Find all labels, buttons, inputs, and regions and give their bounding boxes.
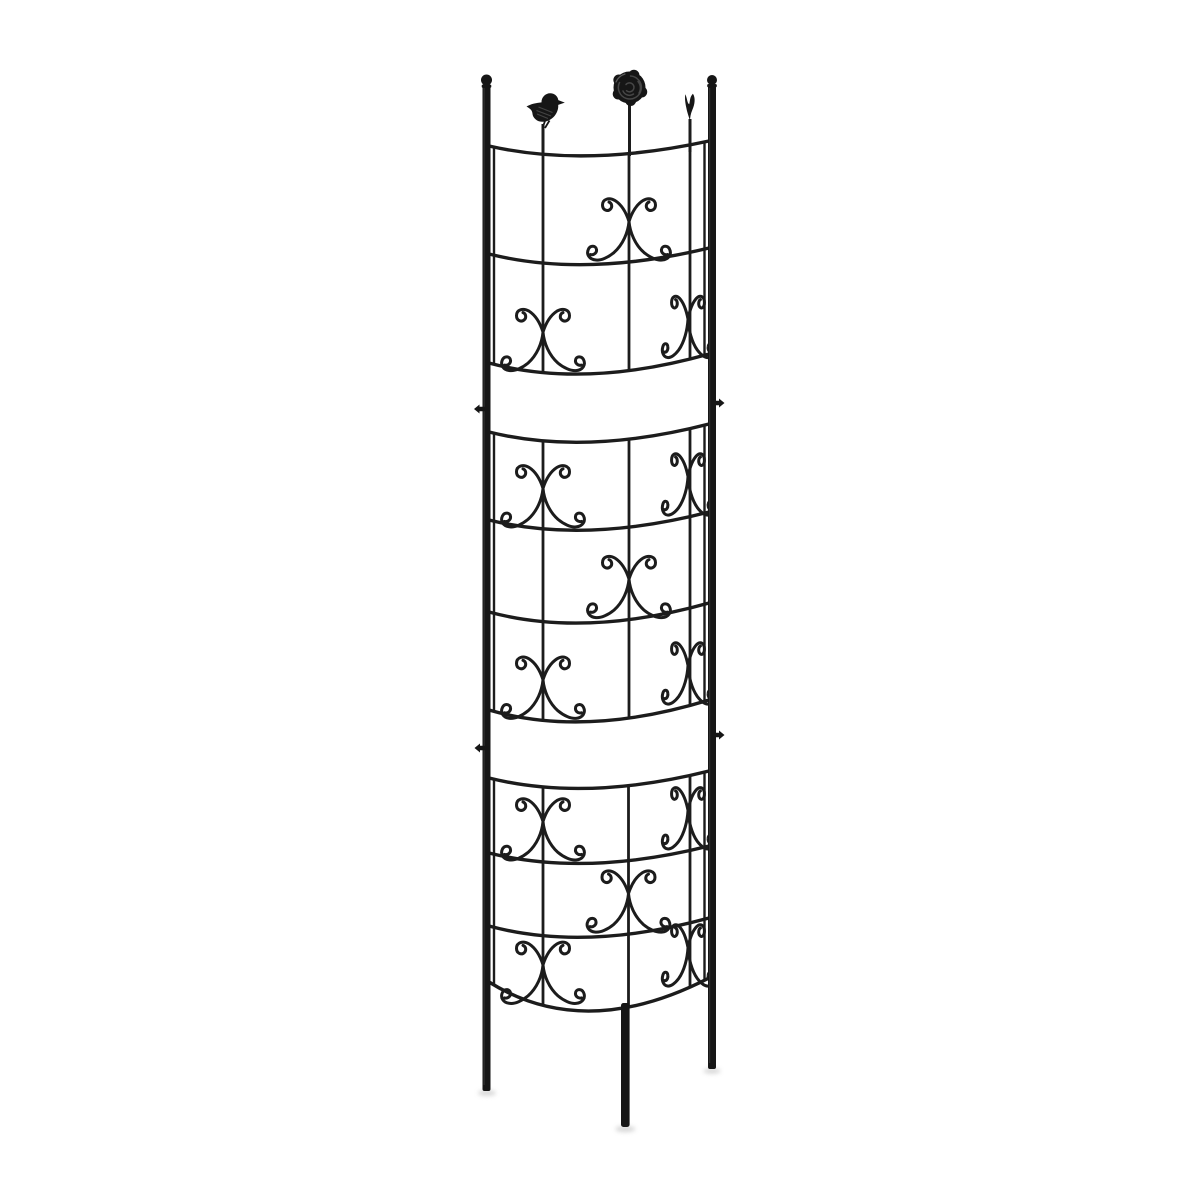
right-post: [707, 75, 717, 1069]
trellis-panel-section-3: [489, 771, 714, 1011]
left-post-sheen: [484, 88, 485, 1085]
right-post-ball-finial: [707, 75, 717, 85]
leg-shadow: [704, 1068, 721, 1074]
horizontal-bar: [489, 771, 709, 788]
bird-finial-right: [685, 94, 695, 121]
horizontal-bar: [489, 846, 709, 863]
trellis-panel-section-2: [489, 424, 714, 722]
horizontal-bar: [489, 603, 709, 623]
scroll-ornament: [662, 296, 713, 357]
horizontal-bar: [489, 248, 709, 265]
horizontal-bar: [489, 512, 709, 530]
horizontal-bar: [489, 141, 709, 156]
scroll-ornament: [662, 788, 713, 849]
horizontal-bar: [489, 424, 709, 442]
horizontal-bar: [489, 354, 709, 374]
trellis-panel-section-1: [489, 141, 714, 374]
left-post: [481, 75, 492, 1092]
horizontal-bar: [489, 700, 709, 722]
rose-finial: [613, 70, 647, 106]
product-photo: [0, 0, 1200, 1200]
right-post-sheen: [709, 88, 710, 1063]
bird-finial-left: [527, 93, 565, 128]
trellis-illustration: [0, 0, 1200, 1200]
left-post-ball-finial: [481, 75, 492, 86]
scroll-ornament: [662, 454, 713, 515]
scroll-ornament: [662, 925, 713, 986]
center-stake-leg: [621, 1003, 630, 1127]
scroll-ornament: [662, 643, 713, 704]
